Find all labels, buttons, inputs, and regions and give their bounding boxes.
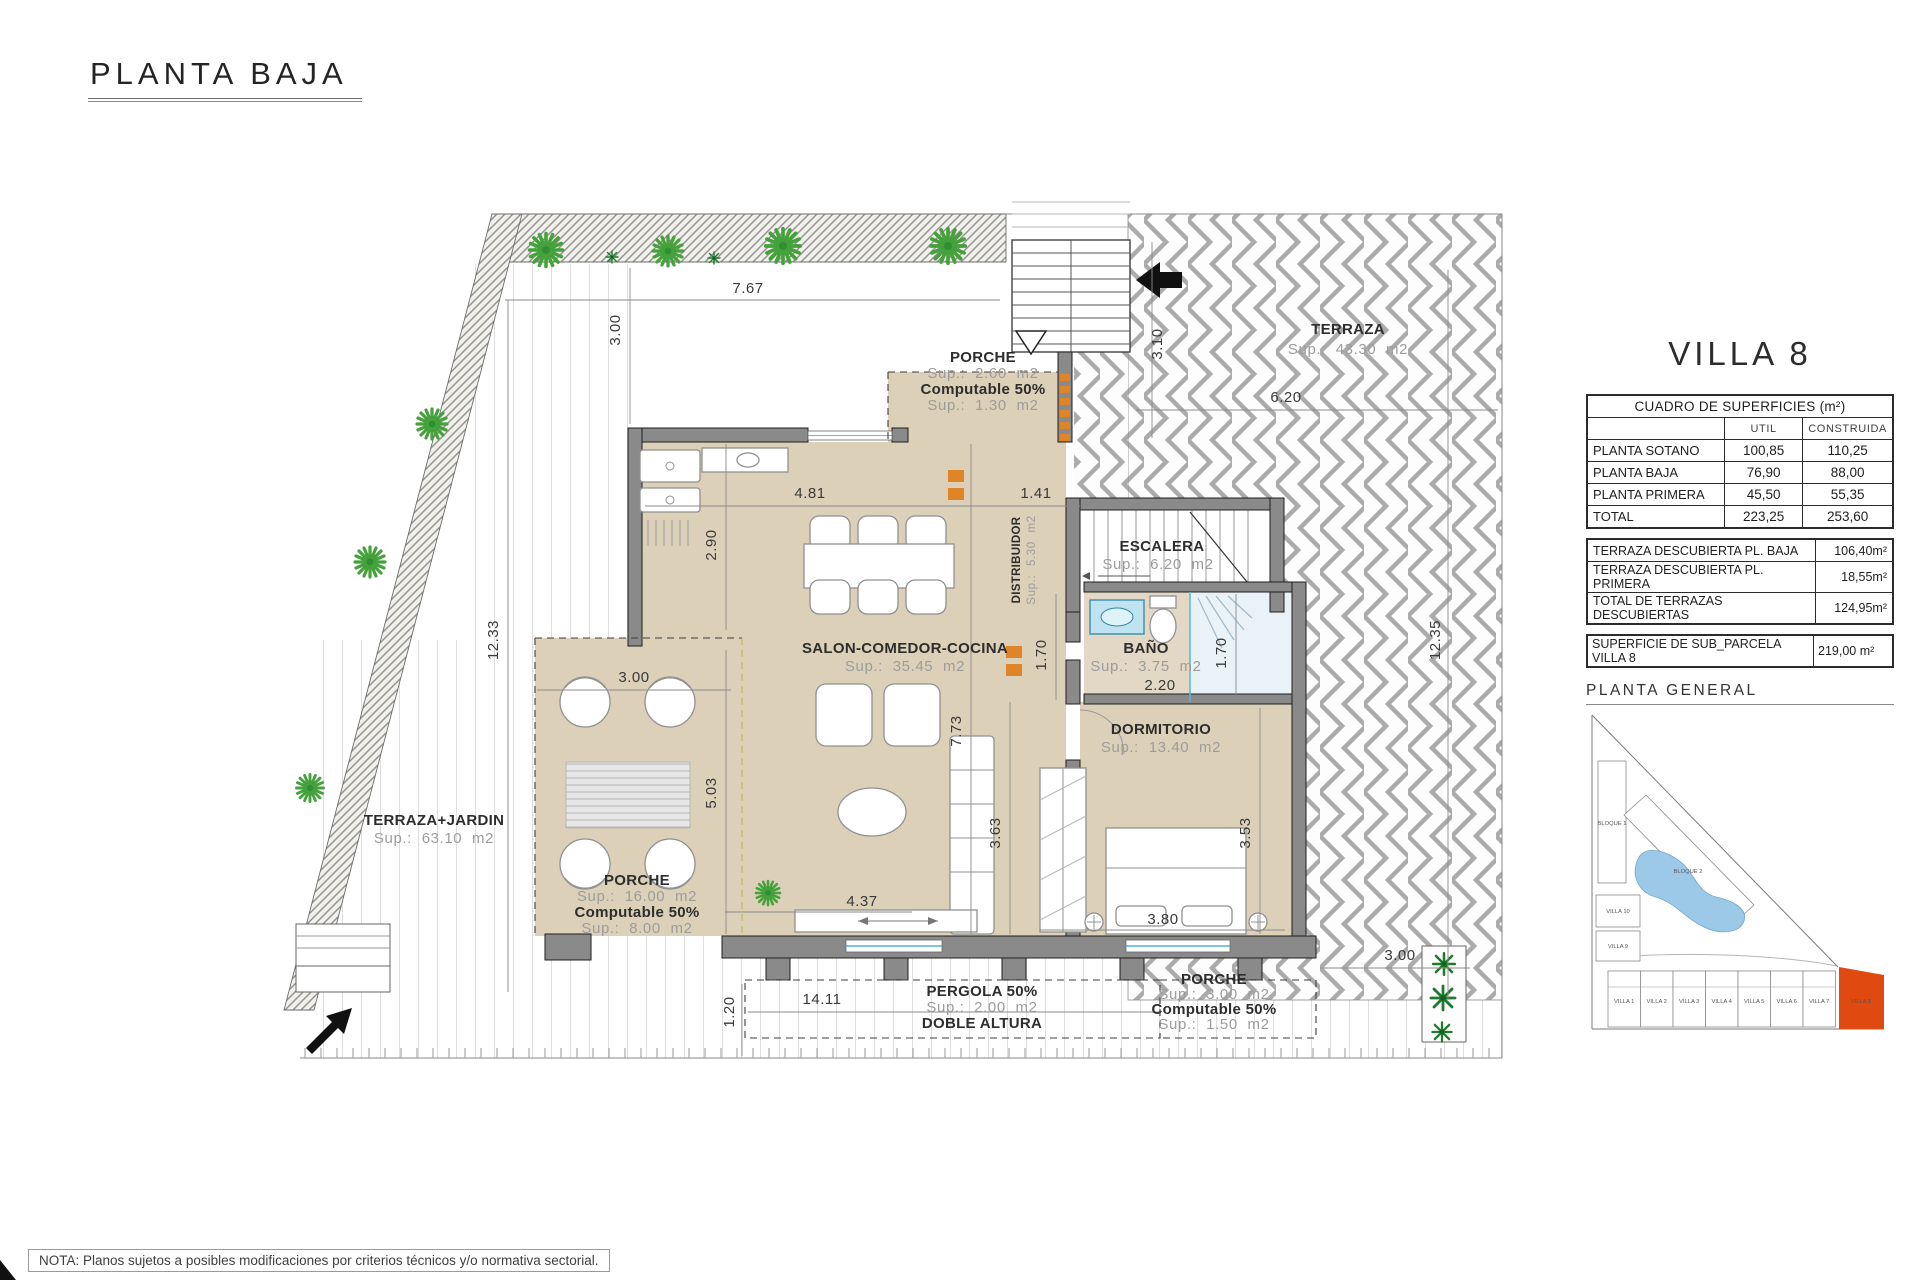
room-area-terraza-jardin: Sup.: 63.10 m2 xyxy=(374,830,494,847)
room-area-dormitorio: Sup.: 13.40 m2 xyxy=(1101,739,1221,756)
dim-salon-bottom: 4.37 xyxy=(846,893,877,910)
surfaces-col-util: UTIL xyxy=(1724,418,1802,440)
room-area-pergola: Sup.: 2.00 m2 xyxy=(926,999,1037,1016)
dim-porche-width: 3.00 xyxy=(618,669,649,686)
room-area-terraza: Sup.: 43.30 m2 xyxy=(1288,341,1408,358)
surfaces-col-construida: CONSTRUIDA xyxy=(1803,418,1893,440)
table-row: PLANTA PRIMERA 45,50 55,35 xyxy=(1587,484,1893,506)
dim-left-height: 12.33 xyxy=(485,620,502,660)
table-row-total: TOTAL 223,25 253,60 xyxy=(1587,506,1893,529)
row-label: PLANTA SOTANO xyxy=(1587,440,1724,462)
room-area-porche-left: Sup.: 16.00 m2 xyxy=(577,888,697,905)
sheet: PLANTA BAJA xyxy=(0,0,1920,1280)
table-row: SUPERFICIE DE SUB_PARCELA VILLA 8 219,00… xyxy=(1587,635,1893,667)
dim-pergola-offset: 1.20 xyxy=(721,996,738,1027)
dim-bath-right: 1.70 xyxy=(1213,637,1230,668)
dining-set xyxy=(804,516,954,614)
row-util: 100,85 xyxy=(1724,440,1802,462)
terrace-label: TOTAL DE TERRAZAS DESCUBIERTAS xyxy=(1587,593,1816,625)
room-area-escalera: Sup.: 6.20 m2 xyxy=(1102,556,1213,573)
bloque1-label: BLOQUE 1 xyxy=(1598,821,1627,827)
room-label-salon: SALON-COMEDOR-COCINA xyxy=(802,640,1008,657)
room-computable-porche-left: Computable 50% xyxy=(574,904,699,921)
surfaces-table-title: CUADRO DE SUPERFICIES (m²) xyxy=(1587,395,1893,418)
info-panel: VILLA 8 CUADRO DE SUPERFICIES (m²) UTIL … xyxy=(1586,336,1894,1044)
dim-salon-lower: 3.63 xyxy=(987,817,1004,848)
room-label-distribuidor: DISTRIBUIDOR xyxy=(1011,516,1023,603)
table-row: TERRAZA DESCUBIERTA PL. BAJA 106,40m² xyxy=(1587,539,1893,562)
row-label: PLANTA PRIMERA xyxy=(1587,484,1724,506)
dim-bottom-right: 3.00 xyxy=(1384,947,1415,964)
row-util: 76,90 xyxy=(1724,462,1802,484)
sheet-note: NOTA: Planos sujetos a posibles modifica… xyxy=(28,1249,610,1272)
row-construida: 55,35 xyxy=(1803,484,1893,506)
room-label-terraza-jardin: TERRAZA+JARDIN xyxy=(364,812,504,829)
villa4-label: VILLA 4 xyxy=(1712,999,1733,1005)
table-row: TERRAZA DESCUBIERTA PL. PRIMERA 18,55m² xyxy=(1587,562,1893,593)
dim-porche-height: 5.03 xyxy=(703,777,720,808)
villa6-label: VILLA 6 xyxy=(1777,999,1797,1005)
room-computable-porche-top: Computable 50% xyxy=(920,381,1045,398)
room-label-pergola: PERGOLA 50% xyxy=(926,983,1037,1000)
terraces-table: TERRAZA DESCUBIERTA PL. BAJA 106,40m² TE… xyxy=(1586,538,1894,625)
villa8-label: VILLA 8 xyxy=(1851,999,1871,1005)
dim-top-garden-depth: 3.00 xyxy=(607,314,624,345)
dim-hall-width: 1.41 xyxy=(1020,485,1051,502)
villa8-lot-highlight xyxy=(1839,967,1884,1029)
surfaces-table: CUADRO DE SUPERFICIES (m²) UTIL CONSTRUI… xyxy=(1586,394,1894,529)
dim-salon-width: 4.81 xyxy=(794,485,825,502)
room-label-bano: BAÑO xyxy=(1123,639,1168,657)
room-doble-altura: DOBLE ALTURA xyxy=(922,1015,1042,1032)
villa3-label: VILLA 3 xyxy=(1679,999,1699,1005)
parcel-table: SUPERFICIE DE SUB_PARCELA VILLA 8 219,00… xyxy=(1586,634,1894,668)
room-area-porche-top: Sup.: 2.60 m2 xyxy=(927,365,1038,382)
table-row: PLANTA SOTANO 100,85 110,25 xyxy=(1587,440,1893,462)
room-computable-area-porche-bottom: Sup.: 1.50 m2 xyxy=(1158,1016,1269,1033)
room-label-porche-top: PORCHE xyxy=(950,349,1016,366)
room-label-dormitorio: DORMITORIO xyxy=(1111,721,1211,738)
page-corner-mark xyxy=(0,1260,16,1280)
terrace-label: TERRAZA DESCUBIERTA PL. BAJA xyxy=(1587,539,1816,562)
bloque2-label: BLOQUE 2 xyxy=(1674,869,1703,875)
terrace-value: 18,55m² xyxy=(1816,562,1894,593)
room-area-bano: Sup.: 3.75 m2 xyxy=(1090,658,1201,675)
parcel-label: SUPERFICIE DE SUB_PARCELA VILLA 8 xyxy=(1587,635,1814,667)
room-computable-area-porche-left: Sup.: 8.00 m2 xyxy=(581,920,692,937)
villa7-label: VILLA 7 xyxy=(1809,999,1829,1005)
room-area-distribuidor: Sup.: 5.30 m2 xyxy=(1026,515,1038,604)
room-label-porche-left: PORCHE xyxy=(604,872,670,889)
row-label: PLANTA BAJA xyxy=(1587,462,1724,484)
row-label: TOTAL xyxy=(1587,506,1724,529)
villa-title: VILLA 8 xyxy=(1586,336,1894,372)
table-row: TOTAL DE TERRAZAS DESCUBIERTAS 124,95m² xyxy=(1587,593,1893,625)
dim-dorm-height: 3.53 xyxy=(1237,817,1254,848)
dim-top-width: 7.67 xyxy=(732,280,763,297)
terrace-label: TERRAZA DESCUBIERTA PL. PRIMERA xyxy=(1587,562,1816,593)
row-util: 45,50 xyxy=(1724,484,1802,506)
terrace-value: 106,40m² xyxy=(1816,539,1894,562)
dim-bottom-width: 14.11 xyxy=(803,991,842,1008)
dim-bed-width: 3.80 xyxy=(1147,911,1178,928)
floor-plan: 7.67 3.00 12.33 4.81 2.90 1.41 3.10 6.20… xyxy=(0,0,1560,1280)
villa9-label: VILLA 9 xyxy=(1608,944,1628,950)
site-plan-title: PLANTA GENERAL xyxy=(1586,682,1894,705)
room-computable-area-porche-top: Sup.: 1.30 m2 xyxy=(927,397,1038,414)
row-construida: 88,00 xyxy=(1803,462,1893,484)
entry-stairs xyxy=(1012,202,1130,352)
dim-stairs-side: 3.10 xyxy=(1149,328,1166,359)
side-entry xyxy=(296,924,390,992)
surfaces-col-empty xyxy=(1587,418,1724,440)
dim-salon-height: 7.73 xyxy=(948,715,965,746)
row-construida: 253,60 xyxy=(1803,506,1893,529)
site-plan: BLOQUE 1 BLOQUE 2 VILLA 10 VILLA 9 VILLA… xyxy=(1586,709,1894,1039)
dim-kitchen-depth: 2.90 xyxy=(703,529,720,560)
row-util: 223,25 xyxy=(1724,506,1802,529)
row-construida: 110,25 xyxy=(1803,440,1893,462)
room-label-escalera: ESCALERA xyxy=(1120,538,1205,555)
villa1-label: VILLA 1 xyxy=(1614,999,1634,1005)
room-area-salon: Sup.: 35.45 m2 xyxy=(845,658,965,675)
dim-right-height: 12.35 xyxy=(1427,620,1444,660)
dim-terraza-width: 6.20 xyxy=(1270,389,1301,406)
terrace-value: 124,95m² xyxy=(1816,593,1894,625)
wardrobe xyxy=(1040,768,1086,932)
dim-bath-left: 1.70 xyxy=(1033,639,1050,670)
villa10-label: VILLA 10 xyxy=(1606,909,1630,915)
room-label-terraza: TERRAZA xyxy=(1311,321,1385,338)
table-row: PLANTA BAJA 76,90 88,00 xyxy=(1587,462,1893,484)
villa5-label: VILLA 5 xyxy=(1744,999,1764,1005)
parcel-value: 219,00 m² xyxy=(1814,635,1894,667)
dim-bath-width: 2.20 xyxy=(1144,677,1175,694)
villa2-label: VILLA 2 xyxy=(1647,999,1667,1005)
